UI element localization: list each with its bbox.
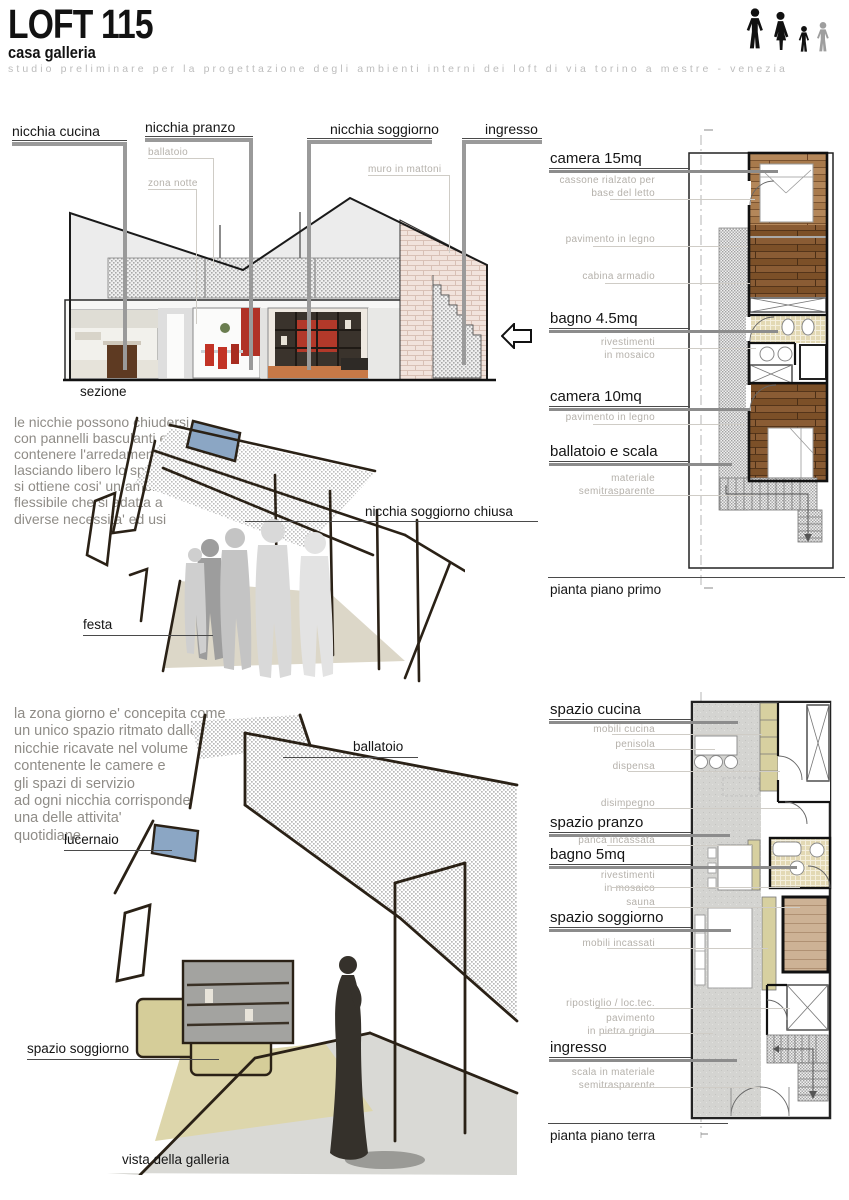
- label-nicchia-soggiorno: nicchia soggiorno: [330, 122, 439, 137]
- leader-line: [600, 495, 755, 496]
- leader-line: [549, 461, 690, 462]
- caption-rule: [548, 577, 845, 578]
- page-title: LOFT 115: [8, 4, 153, 45]
- note-pavimento-legno-1: pavimento in legno: [545, 233, 655, 246]
- note-cassone: cassone rialzato per base del letto: [545, 174, 655, 200]
- leader-line: [549, 168, 690, 169]
- leader-line: [462, 138, 542, 139]
- leader-line: [612, 887, 800, 888]
- caption-rule: [548, 1123, 728, 1124]
- note-rivestimenti-mosaico-1: rivestimenti in mosaico: [545, 336, 655, 362]
- leader-line: [27, 1059, 219, 1060]
- label-nicchia-pranzo: nicchia pranzo: [145, 120, 235, 135]
- bathroom: [770, 838, 830, 888]
- label-spazio-soggiorno-sketch: spazio soggiorno: [27, 1042, 129, 1056]
- leader-line: [605, 283, 750, 284]
- label-ballatoio-sketch: ballatoio: [353, 740, 403, 754]
- label-spazio-soggiorno: spazio soggiorno: [550, 910, 663, 926]
- label-spazio-pranzo: spazio pranzo: [550, 815, 643, 831]
- ballatoio-strip: [719, 228, 748, 510]
- label-bagno-5mq: bagno 5mq: [550, 847, 625, 863]
- label-spazio-cucina: spazio cucina: [550, 702, 641, 718]
- bed-camera-10: [768, 428, 813, 478]
- sketch-galleria: [95, 713, 520, 1175]
- wardrobe: [750, 298, 826, 312]
- label-camera-15mq: camera 15mq: [550, 151, 642, 167]
- leader-line: [449, 175, 450, 253]
- woman-icon: [770, 10, 791, 55]
- leader-line: [549, 929, 731, 932]
- shelving-niche: [183, 961, 293, 1043]
- sketch-festa: [75, 413, 465, 691]
- arrow-left-icon: [501, 323, 533, 349]
- leader-line: [148, 189, 197, 190]
- note-pavimento-legno-2: pavimento in legno: [545, 411, 655, 424]
- leader-line: [213, 158, 214, 268]
- tagline: studio preliminare per la progettazione …: [8, 63, 788, 75]
- leader-line: [549, 719, 691, 720]
- label-nicchia-cucina: nicchia cucina: [12, 124, 100, 139]
- leader-line: [462, 140, 542, 144]
- label-ingresso-pianta: ingresso: [550, 1040, 607, 1056]
- leader-line: [307, 140, 432, 144]
- note-rivestimenti-mosaico-2: rivestimenti in mosaico: [545, 869, 655, 895]
- leader-line: [307, 140, 311, 370]
- wardrobe: [807, 705, 829, 781]
- kitchen-units: [760, 703, 778, 791]
- note-cabina-armadio: cabina armadio: [545, 270, 655, 283]
- leader-line: [593, 424, 745, 425]
- leader-line: [196, 189, 197, 324]
- caption-pianta-piano-primo: pianta piano primo: [550, 582, 661, 597]
- leader-line: [12, 140, 127, 141]
- leader-line: [625, 749, 715, 750]
- label-ballatoio-e-scala: ballatoio e scala: [550, 444, 658, 460]
- penisola: [695, 736, 738, 769]
- leader-line: [283, 757, 418, 758]
- wardrobe: [787, 985, 828, 1030]
- leader-line: [607, 948, 768, 949]
- boy-gray-icon: [815, 21, 831, 55]
- leader-line: [145, 136, 253, 137]
- sauna: [783, 897, 828, 972]
- caption-pianta-piano-terra: pianta piano terra: [550, 1128, 655, 1143]
- leader-line: [368, 175, 450, 176]
- leader-line: [600, 1087, 760, 1088]
- leader-line: [549, 330, 778, 333]
- leader-line: [64, 850, 172, 851]
- label-camera-10mq: camera 10mq: [550, 389, 642, 405]
- leader-line: [12, 142, 127, 146]
- leader-line: [249, 138, 253, 370]
- label-festa: festa: [83, 618, 112, 632]
- caption-vista-della-galleria: vista della galleria: [122, 1152, 229, 1167]
- leader-line: [549, 406, 690, 407]
- label-lucernaio: lucernaio: [64, 833, 119, 847]
- wardrobe: [750, 365, 792, 383]
- note-pavimento-pietra-grigia: pavimento in pietra grigia: [545, 1012, 655, 1038]
- leader-line: [612, 734, 762, 735]
- leader-line: [549, 328, 690, 329]
- caption-sezione: sezione: [80, 384, 127, 399]
- leader-line: [307, 138, 432, 139]
- label-nicchia-soggiorno-chiusa: nicchia soggiorno chiusa: [365, 505, 513, 519]
- leader-line: [593, 246, 748, 247]
- kitchen-photo: [70, 310, 158, 378]
- boy-icon: [797, 25, 811, 55]
- leader-line: [549, 832, 691, 833]
- page-subtitle: casa galleria: [8, 44, 96, 61]
- note-scala-semitrasparente: scala in materiale semitrasparente: [545, 1066, 655, 1092]
- leader-line: [123, 142, 127, 370]
- living-photo: [268, 308, 368, 378]
- leader-line: [245, 521, 538, 522]
- leader-line: [607, 845, 752, 846]
- leader-line: [549, 463, 732, 466]
- leader-line: [549, 170, 778, 173]
- leader-line: [148, 158, 214, 159]
- leader-line: [612, 348, 756, 349]
- leader-line: [610, 199, 755, 200]
- stairs: [720, 478, 822, 542]
- label-ingresso-sezione: ingresso: [485, 122, 538, 137]
- leader-line: [549, 1059, 737, 1062]
- label-bagno-45mq: bagno 4.5mq: [550, 311, 638, 327]
- leader-line: [145, 138, 253, 142]
- crowd-silhouettes: [185, 519, 334, 678]
- leader-line: [638, 907, 800, 908]
- leader-line: [595, 1008, 790, 1009]
- leader-line: [549, 1057, 691, 1058]
- leader-line: [620, 808, 800, 809]
- leader-line: [600, 1033, 713, 1034]
- man-icon: [744, 6, 766, 54]
- leader-line: [549, 927, 691, 928]
- leader-line: [549, 864, 691, 865]
- presentation-board: LOFT 115 casa galleria studio preliminar…: [0, 0, 849, 1200]
- leader-line: [83, 635, 213, 636]
- leader-line: [462, 140, 466, 365]
- leader-line: [628, 771, 780, 772]
